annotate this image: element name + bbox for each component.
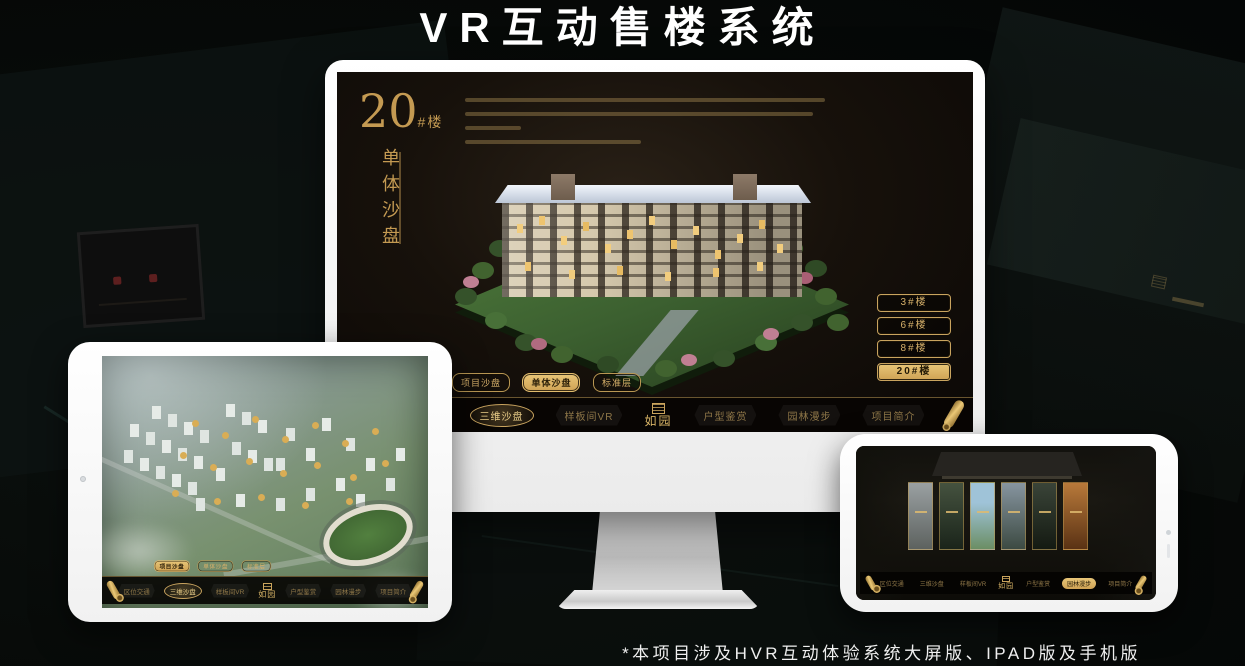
phone-camera-dot (1166, 530, 1171, 535)
nav-item-project-intro[interactable]: 项目简介 (862, 405, 924, 426)
monitor-stand-neck (592, 512, 723, 594)
tab-single-sandtable[interactable]: 单体沙盘 (198, 560, 234, 572)
gallery-panel[interactable] (970, 482, 995, 550)
tab-single-sandtable[interactable]: 单体沙盘 (522, 373, 580, 392)
building-button-6[interactable]: 6#楼 (877, 317, 951, 335)
certificate-line (99, 298, 187, 306)
view-sub-tabs: 项目沙盘 单体沙盘 标准层 (452, 373, 649, 392)
nav-item-showroom-vr[interactable]: 样板间VR (956, 578, 990, 589)
nav-item-showroom-vr[interactable]: 样板间VR (556, 405, 623, 426)
scroll-handle-icon[interactable] (942, 399, 966, 430)
description-line (465, 126, 521, 130)
background-gold-seal (1151, 275, 1167, 290)
gallery-panel[interactable] (1032, 482, 1057, 550)
nav-item-garden-walk[interactable]: 园林漫步 (1062, 578, 1096, 589)
building-selector: 3#楼 6#楼 8#楼 20#楼 (877, 294, 951, 386)
certificate-stamp (149, 274, 158, 283)
scene-gallery-panels (908, 482, 1088, 550)
building-number: 20 (359, 84, 418, 138)
tablet-nav-bar: 区位交通 三维沙盘 样板间VR 如园 户型鉴赏 园林漫步 项目简介 (102, 576, 428, 604)
tablet-device: 项目沙盘 单体沙盘 标准层 区位交通 三维沙盘 样板间VR 如园 户型鉴赏 园林… (68, 342, 452, 622)
tablet-view-sub-tabs: 项目沙盘 单体沙盘 标准层 (154, 560, 276, 572)
nav-item-showroom-vr[interactable]: 样板间VR (211, 584, 250, 598)
page-title: VR互动售楼系统 (0, 0, 1245, 58)
building-button-8[interactable]: 8#楼 (877, 340, 951, 358)
building-number-badges (162, 406, 169, 413)
brand-logo-text: 如园 (644, 414, 672, 428)
building-button-3[interactable]: 3#楼 (877, 294, 951, 312)
brand-logo-text: 如园 (258, 590, 276, 599)
scene-gate-beam-trim (942, 476, 1072, 479)
building-panel-title: 20#楼 (359, 88, 443, 134)
cloud-overlay (102, 520, 194, 582)
footnote-text: *本项目涉及HVR互动体验系统大屏版、IPAD版及手机版 (622, 639, 1141, 664)
brand-seal-icon (652, 403, 665, 414)
tablet-screen: 项目沙盘 单体沙盘 标准层 区位交通 三维沙盘 样板间VR 如园 户型鉴赏 园林… (102, 356, 428, 608)
scroll-handle-icon[interactable] (1134, 575, 1147, 592)
phone-nav-bar: 区位交通 三维沙盘 样板间VR 如园 户型鉴赏 园林漫步 项目简介 (860, 572, 1152, 594)
building-button-20-active[interactable]: 20#楼 (877, 363, 951, 381)
panel-subtitle-divider (399, 152, 401, 244)
gallery-panel[interactable] (908, 482, 933, 550)
nav-item-location[interactable]: 区位交通 (119, 584, 155, 598)
nav-item-floorplans[interactable]: 户型鉴赏 (694, 405, 756, 426)
phone-screen: 区位交通 三维沙盘 样板间VR 如园 户型鉴赏 园林漫步 项目简介 (856, 446, 1156, 600)
aerial-buildings (136, 398, 145, 411)
model-roof-tower (733, 174, 757, 200)
phone-device: 区位交通 三维沙盘 样板间VR 如园 户型鉴赏 园林漫步 项目简介 (840, 434, 1178, 612)
brand-logo: 如园 (258, 583, 276, 599)
model-building-roof (495, 185, 811, 203)
nav-item-project-intro[interactable]: 项目简介 (375, 584, 411, 598)
brand-seal-icon (263, 583, 272, 590)
tab-project-sandtable[interactable]: 项目沙盘 (154, 560, 190, 572)
brand-seal-icon (1002, 576, 1010, 582)
building-number-suffix: #楼 (418, 114, 444, 130)
nav-item-project-intro[interactable]: 项目简介 (1104, 578, 1136, 589)
brand-logo-text: 如园 (998, 583, 1014, 590)
nav-item-garden-walk[interactable]: 园林漫步 (330, 584, 366, 598)
phone-speaker-slot (1167, 544, 1170, 558)
certificate-stamp (113, 276, 122, 285)
description-line (465, 98, 825, 102)
nav-item-floorplans[interactable]: 户型鉴赏 (285, 584, 321, 598)
description-line (465, 140, 641, 144)
nav-item-3d-sandtable[interactable]: 三维沙盘 (916, 578, 948, 589)
description-line (465, 112, 813, 116)
model-lit-windows (509, 210, 515, 219)
nav-item-floorplans[interactable]: 户型鉴赏 (1022, 578, 1054, 589)
tab-standard-floor[interactable]: 标准层 (241, 560, 271, 572)
nav-item-garden-walk[interactable]: 园林漫步 (778, 405, 840, 426)
gallery-panel[interactable] (1063, 482, 1088, 550)
brand-logo: 如园 (644, 403, 672, 427)
tablet-camera-dot (80, 476, 86, 482)
description-text-lines (465, 98, 825, 154)
nav-item-3d-sandtable[interactable]: 三维沙盘 (470, 404, 534, 427)
tab-project-sandtable[interactable]: 项目沙盘 (452, 373, 510, 392)
monitor-stand-base (556, 590, 760, 609)
scene-gate-beam (932, 452, 1082, 476)
model-building-facade (502, 202, 802, 297)
gallery-panel[interactable] (939, 482, 964, 550)
nav-item-3d-sandtable[interactable]: 三维沙盘 (164, 583, 202, 599)
tab-standard-floor[interactable]: 标准层 (593, 373, 641, 392)
model-roof-tower (551, 174, 575, 200)
gallery-panel[interactable] (1001, 482, 1026, 550)
brand-logo: 如园 (998, 576, 1014, 590)
background-certificate-frame (77, 224, 205, 328)
